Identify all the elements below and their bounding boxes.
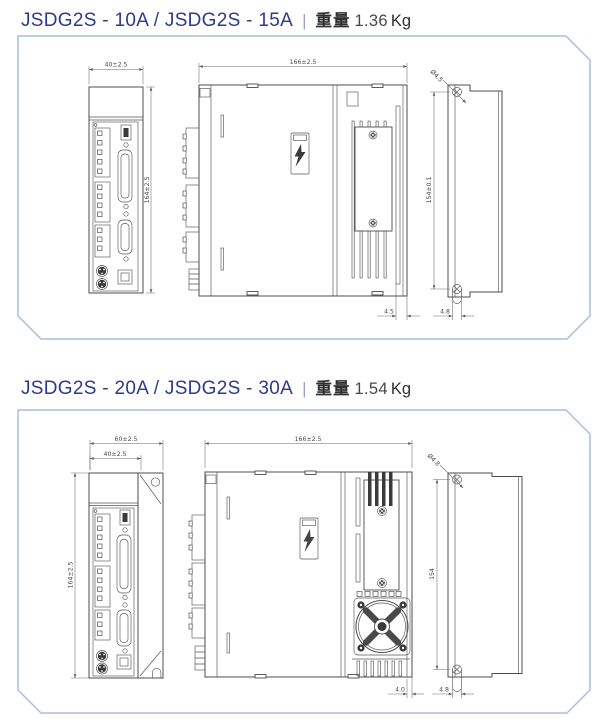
dim-mount-tab-width: 4.8 — [439, 687, 449, 694]
dim-front-height: 164±2.5 — [144, 177, 151, 204]
dim-front-height: 164±2.5 — [68, 562, 75, 589]
panel-border — [18, 36, 590, 339]
catalog-page: JSDG2S - 10A / JSDG2S - 15A | 重量 1.36 Kg… — [0, 0, 600, 720]
dim-side-depth: 166±2.5 — [295, 436, 322, 443]
weight-unit: Kg — [391, 12, 411, 31]
dim-mount-pitch: 154±0.1 — [426, 177, 433, 204]
weight-unit: Kg — [391, 380, 411, 399]
title-separator: | — [302, 11, 306, 31]
model-name: JSDG2S - 10A / JSDG2S - 15A — [21, 10, 293, 32]
weight-label: 重量 — [316, 375, 351, 399]
dim-heatsink-gap: 4.5 — [384, 309, 394, 316]
weight-value: 1.36 — [355, 12, 388, 31]
model-name: JSDG2S - 20A / JSDG2S - 30A — [21, 378, 293, 400]
weight-value: 1.54 — [355, 380, 388, 399]
section1-title: JSDG2S - 10A / JSDG2S - 15A | 重量 1.36 Kg — [21, 7, 411, 32]
dim-mount-tab-width: 4.8 — [440, 309, 450, 316]
title-separator: | — [302, 379, 306, 399]
drawing-panel-20a-30a: 60±2.5 40±2.5 164±2.5 — [0, 408, 600, 716]
section2-title: JSDG2S - 20A / JSDG2S - 30A | 重量 1.54 Kg — [21, 375, 411, 400]
dim-front-width: 40±2.5 — [105, 62, 128, 69]
weight-label: 重量 — [316, 7, 351, 31]
dim-heatsink-gap: 4.0 — [395, 687, 405, 694]
dim-side-depth: 166±2.5 — [290, 59, 317, 66]
dim-mount-pitch: 154 — [429, 568, 436, 580]
dim-front-outer-width: 60±2.5 — [115, 436, 138, 443]
drawing-panel-10a-15a: 40±2.5 164±2.5 — [0, 33, 600, 345]
dim-front-width: 40±2.5 — [104, 451, 127, 458]
